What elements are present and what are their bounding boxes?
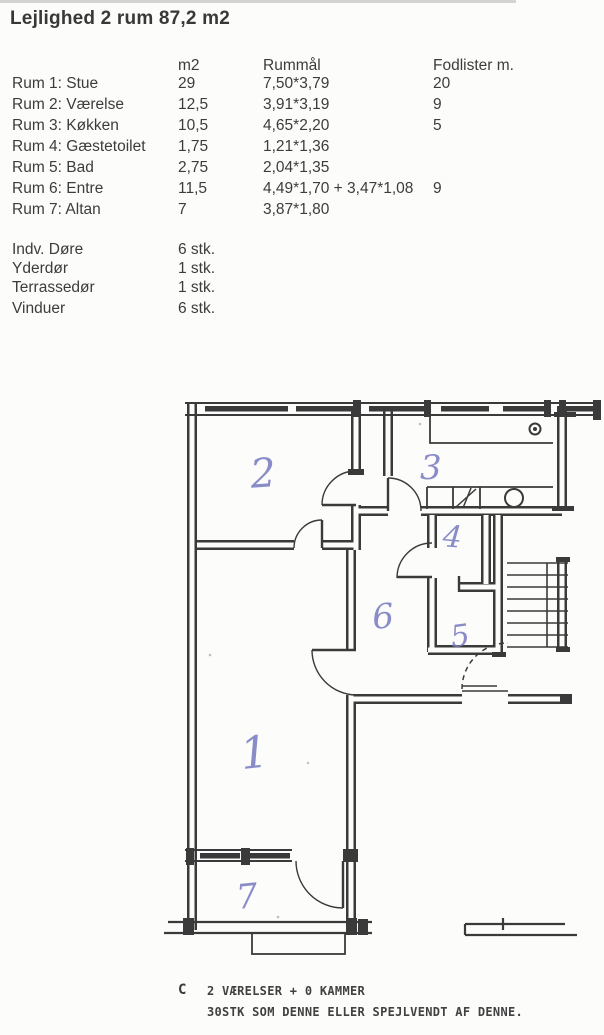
door-arc-room1-room2 <box>294 520 322 548</box>
apartment-type-letter: C <box>178 982 186 998</box>
footer-line1: 2 VÆRELSER + 0 KAMMER <box>207 984 365 998</box>
room-number-label-1: 1 <box>238 726 271 780</box>
floorplan-drawing: 1 2 3 4 5 6 7 <box>0 0 604 1035</box>
room-number-label-3: 3 <box>420 448 442 488</box>
room-number-label-7: 7 <box>234 876 260 918</box>
neighbor-railing <box>465 918 577 935</box>
footer-line2: 30STK SOM DENNE ELLER SPEJLVENDT AF DENN… <box>207 1005 523 1019</box>
door-arc-terrace <box>296 861 343 908</box>
door-swings <box>294 471 508 908</box>
room-number-label-2: 2 <box>248 450 278 498</box>
room-number-label-5: 5 <box>448 618 472 655</box>
door-arc-kitchen <box>388 478 421 511</box>
door-arc-room2 <box>322 471 356 505</box>
stove-symbol <box>456 488 476 508</box>
entrance-threshold <box>462 686 508 691</box>
door-arc-toilet <box>397 543 432 578</box>
sink-symbol <box>505 489 523 507</box>
burner-symbol <box>530 424 541 435</box>
window-band-balcony <box>185 848 358 865</box>
room-number-label-4: 4 <box>440 519 463 556</box>
scanned-floorplan-page: { "title": "Lejlighed 2 rum 87,2 m2", "r… <box>0 0 604 1035</box>
room-number-label-6: 6 <box>371 596 396 638</box>
scan-specks <box>209 423 422 919</box>
door-arc-livingroom <box>312 650 356 695</box>
